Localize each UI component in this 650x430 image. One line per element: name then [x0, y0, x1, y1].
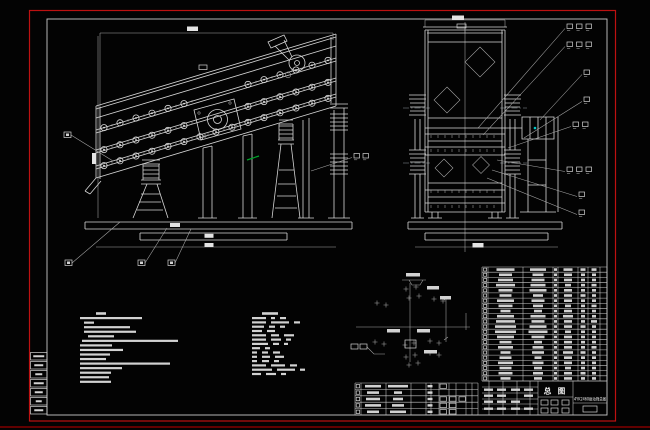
signature-blob: [524, 408, 533, 410]
bom-seq-box: [484, 268, 487, 271]
bolt-center: [311, 64, 313, 66]
anchor-pad-blob: [417, 329, 430, 333]
bom-weight-blob: [581, 268, 586, 271]
balloon-number-text: [67, 262, 70, 265]
lower-name-blob: [394, 391, 402, 394]
bolt-center: [327, 60, 329, 62]
signature-blob: [511, 401, 520, 403]
bom-weight-blob: [592, 284, 597, 287]
end-view-base: [408, 212, 562, 240]
bom-weight-blob: [581, 356, 585, 359]
signature-blob: [524, 389, 533, 391]
lower-name-blob: [390, 411, 406, 414]
technical-parameters-text: [252, 312, 305, 375]
bom-material-blob: [564, 341, 572, 344]
detail-box: [360, 344, 367, 349]
bom-seq-box: [484, 377, 487, 380]
bom-name-blob: [532, 351, 544, 354]
bom-seq-box: [484, 346, 487, 349]
bolt-center: [119, 160, 121, 162]
parameter-line-segment: [274, 360, 279, 362]
anchor-bolt-cross: [404, 287, 409, 292]
bom-weight-blob: [581, 299, 585, 302]
bom-weight-blob: [581, 273, 585, 276]
revision-strip: [31, 353, 48, 415]
bom-name-blob: [530, 325, 547, 328]
bolt-center: [103, 165, 105, 167]
end-view: [403, 20, 562, 252]
motor-drive: [505, 117, 558, 212]
scale-box: [583, 406, 597, 412]
bom-code-blob: [498, 279, 513, 282]
anchor-bolt-cross: [417, 294, 422, 299]
bom-seq-box: [484, 372, 487, 375]
bom-weight-blob: [592, 305, 597, 308]
title-small-box: [562, 408, 569, 413]
balloon-leader-line: [72, 222, 120, 263]
bolt-center: [263, 101, 265, 103]
drawing-canvas: 总 图 4YK2460振动筛总图: [0, 0, 650, 430]
signature-blob: [524, 395, 533, 397]
part-label-char-box: [567, 24, 573, 29]
bom-qty-blob: [554, 268, 557, 271]
bom-seq-box: [484, 361, 487, 364]
bom-weight-blob: [592, 289, 596, 292]
bom-name-blob: [534, 341, 542, 344]
detail-centerlines: [356, 280, 470, 362]
bolt-center: [167, 146, 169, 148]
bolt-center: [311, 86, 313, 88]
bom-material-blob: [563, 315, 573, 318]
bom-material-blob: [564, 320, 572, 323]
notes-line: [80, 381, 111, 383]
anchor-pad-blob: [387, 329, 400, 333]
anchor-bolt-cross: [404, 355, 409, 360]
bolt-center: [215, 131, 217, 133]
anchor-bolt-cross: [407, 296, 412, 301]
anchor-pad-blob: [427, 286, 439, 290]
bom-name-blob: [533, 346, 544, 349]
lower-seq-box: [356, 385, 359, 388]
bom-weight-blob: [581, 310, 585, 313]
notes-line: [80, 358, 106, 360]
bom-qty-blob: [554, 310, 557, 313]
anchor-bolt-cross: [373, 340, 378, 345]
bom-seq-box: [484, 330, 487, 333]
drawing-title-text: 4YK2460振动筛总图: [574, 396, 606, 402]
parameter-line-segment: [286, 339, 291, 341]
bom-code-blob: [499, 289, 513, 292]
anchor-bolt-cross: [382, 342, 387, 347]
lower-seq-box: [356, 404, 359, 407]
bom-material-blob: [564, 346, 572, 349]
revision-cell-text: [35, 391, 43, 393]
bolt-center: [135, 139, 137, 141]
detail-box: [351, 344, 358, 349]
anchor-bolt-cross: [428, 339, 433, 344]
motor-and-bracket: [505, 117, 558, 212]
anchor-bolt-cross: [416, 361, 421, 366]
bom-name-blob: [529, 330, 548, 333]
parameter-line-segment: [252, 330, 262, 332]
bom-material-blob: [565, 367, 571, 370]
parameter-line-segment: [252, 321, 266, 323]
part-label-char-box: [586, 42, 592, 47]
part-label-char-box: [363, 154, 369, 159]
parameter-line-segment: [300, 369, 305, 371]
bom-name-blob: [532, 299, 545, 302]
parameter-line-segment: [252, 369, 272, 371]
lower-code-blob: [367, 391, 379, 394]
lower-qty-blob: [428, 391, 433, 393]
bom-qty-blob: [554, 377, 557, 380]
bom-material-blob: [563, 351, 573, 354]
bolt-center: [103, 149, 105, 151]
bom-weight-blob: [592, 279, 596, 282]
lower-seq-box: [356, 397, 359, 400]
anchor-bolt-cross: [413, 353, 418, 358]
bom-seq-box: [484, 299, 487, 302]
anchor-bolt-cross: [432, 297, 437, 302]
bom-name-blob: [533, 273, 544, 276]
bom-qty-blob: [554, 289, 557, 292]
bom-weight-blob: [592, 273, 596, 276]
lower-extra-box: [450, 397, 457, 401]
right-suspension-springs: [504, 95, 521, 218]
signature-blob: [484, 395, 493, 397]
bom-qty-blob: [554, 284, 557, 287]
bolt-center: [151, 134, 153, 136]
lower-seq-box: [356, 391, 359, 394]
bom-code-blob: [501, 310, 511, 313]
anchor-pad-blob: [424, 350, 437, 354]
leader-line: [508, 127, 571, 149]
bom-seq-box: [484, 304, 487, 307]
bom-weight-blob: [592, 310, 596, 313]
bom-name-blob: [534, 310, 542, 313]
bom-qty-blob: [554, 356, 557, 359]
bom-material-blob: [564, 299, 572, 302]
front-spring-support-tower: [133, 160, 168, 218]
lower-qty-blob: [428, 398, 433, 400]
parameter-line-segment: [271, 364, 285, 366]
balloon-number-text: [170, 262, 173, 265]
bom-weight-blob: [581, 377, 585, 380]
bolt-center: [167, 108, 169, 110]
balloon-labels: [64, 132, 191, 266]
bolt-center: [295, 91, 297, 93]
leader-line: [478, 29, 565, 129]
bom-qty-blob: [554, 330, 557, 333]
anchor-bolt-cross: [437, 341, 442, 346]
revision-cell-text: [35, 373, 42, 375]
notes-line: [80, 344, 112, 346]
parameter-line-segment: [252, 360, 257, 362]
lower-extra-box: [450, 403, 457, 407]
bolt-center: [247, 122, 249, 124]
bom-qty-blob: [554, 299, 557, 302]
bom-weight-blob: [592, 299, 596, 302]
signature-blob: [484, 401, 493, 403]
bolt-center: [103, 127, 105, 129]
bom-seq-box: [484, 325, 487, 328]
bom-qty-blob: [554, 325, 557, 328]
bom-seq-box: [484, 356, 487, 359]
mesh-panel-3: [435, 159, 453, 177]
notes-line: [82, 340, 178, 342]
bolt-center: [135, 117, 137, 119]
bom-name-blob: [530, 289, 547, 292]
bom-seq-box: [484, 310, 487, 313]
parameter-line-segment: [262, 351, 268, 353]
lower-name-blob: [392, 404, 404, 407]
bom-name-blob: [532, 279, 545, 282]
mesh-panel-1: [465, 47, 495, 77]
dimension-text-blob: [473, 243, 484, 248]
anchor-bolt-cross: [384, 303, 389, 308]
side-view: [85, 33, 352, 247]
leader-line: [540, 75, 582, 121]
parameter-line-segment: [271, 321, 289, 323]
bom-qty-blob: [554, 315, 557, 318]
bom-code-blob: [500, 294, 512, 297]
rear-spring-support-tower: [272, 120, 300, 218]
bom-weight-blob: [592, 356, 596, 359]
parameter-line-segment: [252, 334, 266, 336]
notes-title-blob: [96, 312, 106, 315]
title-small-box: [562, 400, 569, 405]
part-label-char-box: [586, 167, 592, 172]
bom-name-blob: [530, 268, 546, 271]
bom-material-blob: [564, 310, 572, 313]
technical-notes-text: [80, 312, 178, 383]
bolt-center: [135, 155, 137, 157]
signature-blob: [511, 389, 520, 391]
title-small-box: [551, 400, 558, 405]
notes-line: [80, 349, 123, 351]
lower-qty-blob: [428, 404, 433, 406]
cad-drawing-sheet: 总 图 4YK2460振动筛总图: [0, 0, 650, 430]
bom-weight-blob: [592, 351, 596, 354]
dimension-text-blob: [205, 243, 214, 247]
part-label-char-box: [584, 70, 590, 75]
bolt-center: [295, 107, 297, 109]
lower-extra-box: [459, 397, 466, 401]
bom-qty-blob: [554, 351, 557, 354]
signature-blob: [497, 408, 506, 410]
part-label-char-box: [567, 42, 573, 47]
bom-code-blob: [500, 367, 512, 370]
bom-code-blob: [501, 351, 511, 354]
bolt-center: [327, 98, 329, 100]
bom-material-blob: [564, 289, 572, 292]
lower-extra-box: [450, 410, 457, 414]
notes-line: [80, 317, 142, 319]
bom-code-blob: [500, 356, 512, 359]
lower-name-blob: [393, 398, 403, 401]
lower-code-blob: [367, 411, 379, 414]
parameter-line-segment: [271, 334, 279, 336]
drive-pulley: [268, 35, 305, 78]
bom-code-blob: [500, 341, 512, 344]
revision-cell-text: [33, 355, 44, 357]
bolt-center: [263, 117, 265, 119]
parameter-line-segment: [271, 317, 275, 319]
notes-line: [84, 326, 130, 328]
title-small-box: [551, 408, 558, 413]
bom-material-blob: [564, 273, 572, 276]
bom-qty-blob: [554, 273, 557, 276]
bom-qty-blob: [554, 362, 557, 365]
bom-seq-box: [484, 315, 487, 318]
mesh-panels: [434, 47, 495, 177]
parameter-line-segment: [262, 356, 270, 358]
bom-code-blob: [499, 372, 513, 375]
bom-weight-blob: [592, 330, 596, 333]
notes-line: [84, 331, 136, 333]
bom-code-blob: [501, 377, 511, 380]
signature-blob: [497, 389, 506, 391]
end-view-dimension-lines: [415, 20, 558, 252]
bolt-center: [119, 144, 121, 146]
bom-weight-blob: [592, 315, 596, 318]
base-frame: [85, 222, 352, 240]
bom-weight-blob: [581, 367, 585, 370]
bolt-center: [279, 112, 281, 114]
bom-qty-blob: [554, 372, 557, 375]
signature-blob: [497, 401, 506, 403]
parameter-line-segment: [252, 326, 264, 328]
middle-support-columns: [198, 134, 257, 218]
bom-material-blob: [564, 372, 572, 375]
bom-seq-box: [484, 335, 487, 338]
lower-extra-box: [440, 403, 447, 407]
anchor-pad-blob: [406, 273, 420, 277]
bom-weight-blob: [581, 279, 585, 282]
bom-weight-blob: [581, 372, 586, 375]
lower-extra-box: [440, 410, 447, 414]
balloon-leader-line: [175, 229, 191, 263]
parameter-line-segment: [252, 347, 260, 349]
sheet-red-border: [30, 11, 616, 422]
lower-extra-box: [440, 384, 447, 388]
bom-weight-blob: [592, 362, 596, 365]
exciter-housing: [208, 110, 228, 130]
dimension-text-blob: [92, 153, 96, 164]
bom-weight-blob: [581, 336, 585, 339]
lower-qty-blob: [428, 385, 433, 387]
balloon-number-text: [140, 262, 143, 265]
lower-code-blob: [365, 404, 381, 407]
bom-name-blob: [533, 372, 543, 375]
parameter-line-segment: [252, 364, 266, 366]
bom-weight-blob: [581, 320, 585, 323]
bom-qty-blob: [554, 367, 557, 370]
bom-code-blob: [495, 330, 516, 333]
notes-line: [80, 367, 122, 369]
green-highlight-line: [247, 156, 259, 160]
bom-name-blob: [532, 336, 545, 339]
detail-box: [405, 340, 416, 348]
notes-line: [88, 335, 114, 337]
parameter-line-segment: [290, 364, 297, 366]
lower-name-blob: [388, 385, 408, 388]
bom-qty-blob: [554, 346, 557, 349]
parameter-line-segment: [252, 356, 257, 358]
balloon-number-text: [66, 134, 69, 137]
left-suspension-springs: [409, 95, 426, 218]
bom-weight-blob: [592, 325, 596, 328]
bom-weight-blob: [581, 351, 586, 354]
revision-cell-text: [34, 382, 44, 384]
bom-name-blob: [533, 362, 544, 365]
leader-line: [487, 178, 577, 215]
parameter-line-segment: [265, 347, 270, 349]
bom-seq-box: [484, 351, 487, 354]
bolt-center: [151, 150, 153, 152]
title-block: 总 图 4YK2460振动筛总图: [482, 381, 607, 415]
bom-name-blob: [531, 284, 546, 287]
bom-seq-box: [484, 284, 487, 287]
anchor-pad-blob: [440, 296, 451, 300]
anchor-bolt-cross: [437, 353, 442, 358]
part-label-char-box: [577, 42, 583, 47]
bom-qty-blob: [554, 305, 557, 308]
signature-blob: [484, 389, 493, 391]
parameter-line-segment: [284, 334, 294, 336]
dimension-text-blob: [205, 234, 214, 238]
bom-seq-box: [484, 367, 487, 370]
bom-material-blob: [564, 268, 573, 271]
parts-list-table: [482, 267, 607, 381]
notes-line: [80, 376, 109, 378]
parameter-line-segment: [267, 330, 275, 332]
bom-name-blob: [534, 367, 542, 370]
signature-blob: [484, 408, 493, 410]
bom-name-blob: [535, 356, 542, 359]
bom-weight-blob: [581, 341, 585, 344]
notes-line: [80, 372, 111, 374]
bom-qty-blob: [554, 320, 557, 323]
bolt-center: [151, 112, 153, 114]
bom-seq-box: [484, 341, 487, 344]
parameter-line-segment: [252, 351, 257, 353]
lower-qty-blob: [428, 411, 433, 413]
bom-qty-blob: [554, 294, 557, 297]
leader-line: [483, 47, 565, 136]
part-label-char-box: [586, 24, 592, 29]
foundation-bolt-layout-detail: [351, 273, 470, 368]
part-label-char-box: [579, 210, 585, 215]
bom-qty-blob: [554, 279, 557, 282]
bolt-center: [327, 82, 329, 84]
bom-code-blob: [498, 346, 513, 349]
bom-code-blob: [499, 305, 513, 308]
parameter-line-segment: [277, 369, 295, 371]
parameter-line-segment: [280, 326, 285, 328]
bom-weight-blob: [592, 367, 596, 370]
parameter-line-segment: [271, 339, 281, 341]
bom-code-blob: [495, 325, 516, 328]
bom-name-blob: [531, 315, 546, 318]
bolt-center: [183, 141, 185, 143]
cyan-motor-dot: [534, 127, 537, 130]
part-label-char-box: [577, 167, 583, 172]
bom-material-blob: [564, 362, 572, 365]
bom-name-blob: [533, 305, 543, 308]
detail-marks: [351, 273, 451, 368]
parameter-line-segment: [269, 326, 275, 328]
